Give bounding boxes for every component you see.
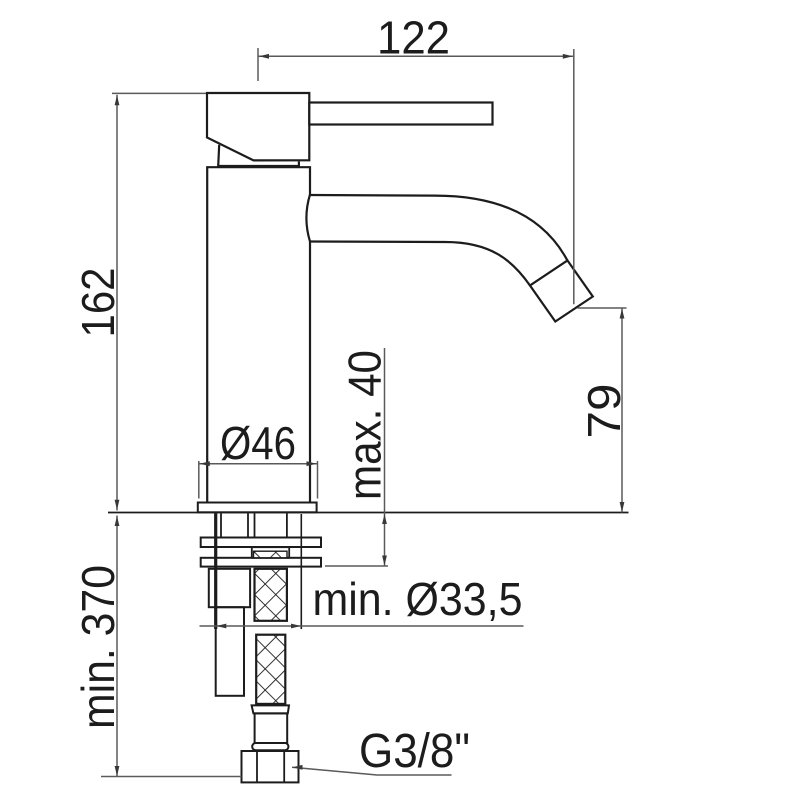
svg-text:min. Ø33,5: min. Ø33,5 xyxy=(313,573,523,625)
svg-text:Ø46: Ø46 xyxy=(220,417,296,469)
svg-text:max. 40: max. 40 xyxy=(339,350,391,500)
svg-text:122: 122 xyxy=(377,12,450,64)
svg-text:min. 370: min. 370 xyxy=(72,565,124,729)
svg-text:162: 162 xyxy=(72,268,124,338)
svg-text:G3/8": G3/8" xyxy=(359,725,470,778)
svg-text:79: 79 xyxy=(578,384,630,439)
